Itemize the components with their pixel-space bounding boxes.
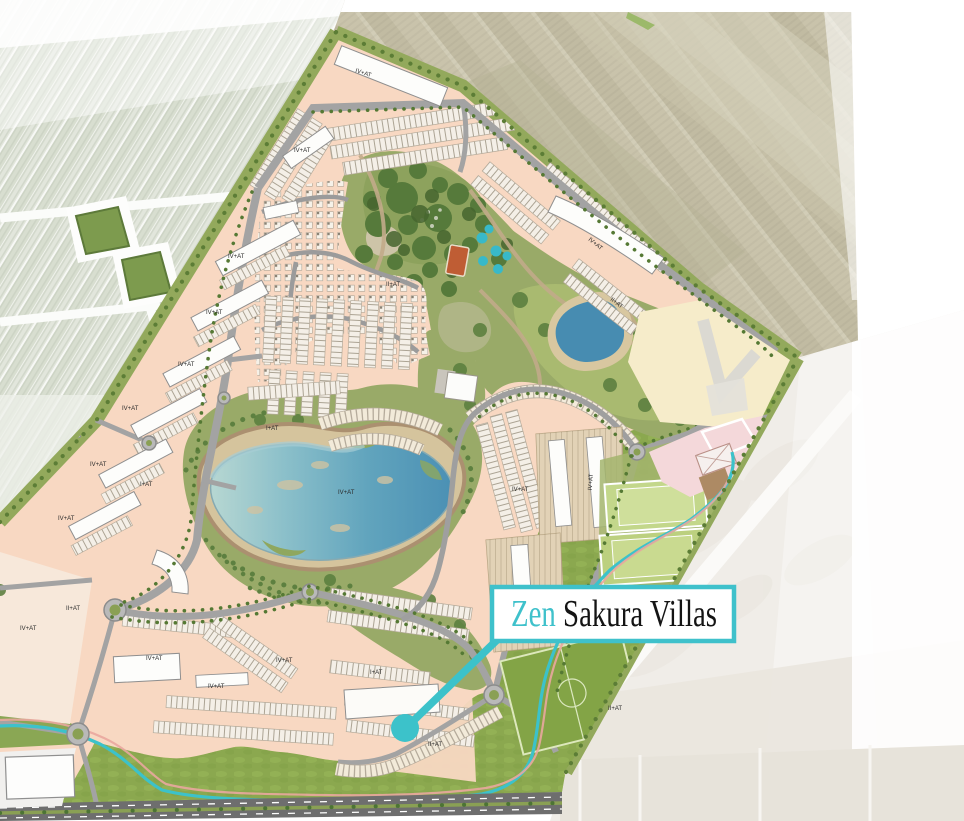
svg-text:IV+AT: IV+AT <box>228 254 245 260</box>
svg-text:Zen Sakura Villas: Zen Sakura Villas <box>511 593 717 635</box>
svg-text:IV+AT: IV+AT <box>90 462 107 468</box>
svg-text:II+AT: II+AT <box>428 742 442 748</box>
svg-text:IV+AT: IV+AT <box>294 148 311 154</box>
svg-text:IV+AT: IV+AT <box>178 362 195 368</box>
svg-text:IV+AT: IV+AT <box>58 516 75 522</box>
svg-text:I+AT: I+AT <box>370 670 383 676</box>
svg-text:I+AT: I+AT <box>140 482 153 488</box>
svg-text:IV+AT: IV+AT <box>122 406 139 412</box>
svg-text:IV+AT: IV+AT <box>512 487 529 493</box>
svg-text:II+AT: II+AT <box>66 606 80 612</box>
svg-text:IV+AT: IV+AT <box>588 473 595 490</box>
svg-text:II+AT: II+AT <box>608 706 622 712</box>
svg-text:IV+AT: IV+AT <box>206 310 223 316</box>
svg-text:IV+AT: IV+AT <box>208 684 225 690</box>
svg-text:I+AT: I+AT <box>266 426 279 432</box>
svg-text:IV+AT: IV+AT <box>146 656 163 662</box>
svg-text:IV+AT: IV+AT <box>338 490 355 496</box>
svg-text:IV+AT: IV+AT <box>20 626 37 632</box>
svg-text:II+AT: II+AT <box>386 282 400 288</box>
svg-text:IV+AT: IV+AT <box>276 658 293 664</box>
